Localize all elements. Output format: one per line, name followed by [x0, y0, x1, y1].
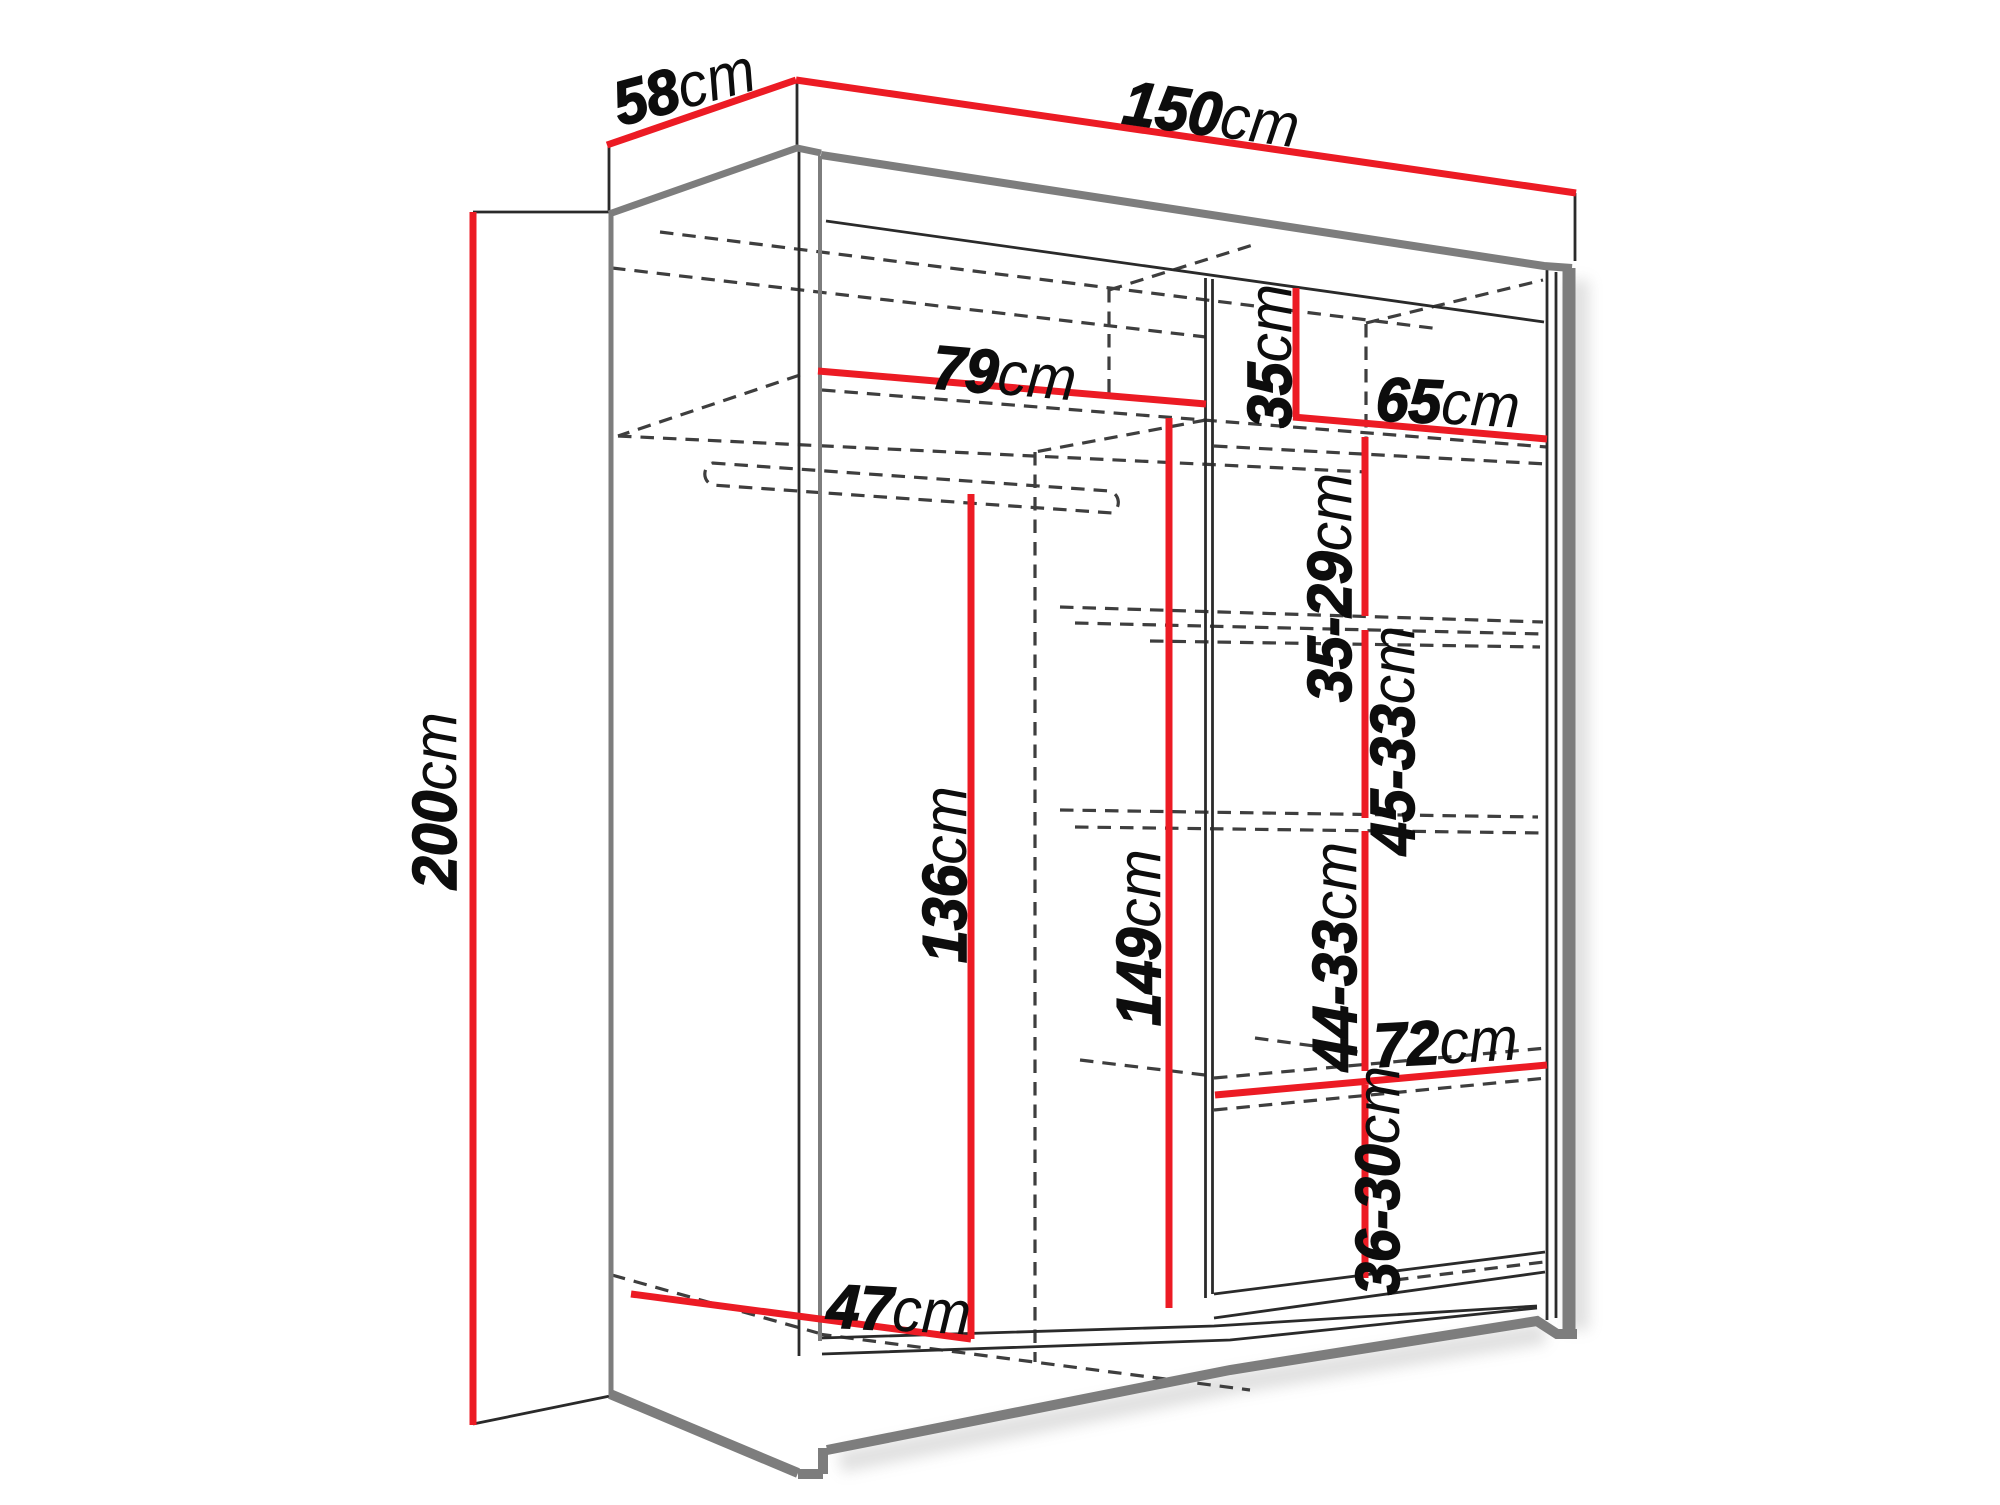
svg-text:47cm: 47cm: [824, 1271, 972, 1348]
svg-text:35cm: 35cm: [1235, 284, 1305, 428]
svg-text:65cm: 65cm: [1374, 364, 1521, 441]
svg-text:200cm: 200cm: [400, 712, 470, 890]
svg-text:79cm: 79cm: [930, 332, 1080, 414]
svg-text:149cm: 149cm: [1104, 849, 1174, 1026]
svg-text:45-33cm: 45-33cm: [1358, 626, 1428, 856]
svg-text:44-33cm: 44-33cm: [1300, 842, 1370, 1072]
svg-text:35-29cm: 35-29cm: [1295, 473, 1365, 702]
svg-text:136cm: 136cm: [910, 786, 980, 963]
svg-text:36-30cm: 36-30cm: [1343, 1066, 1413, 1295]
